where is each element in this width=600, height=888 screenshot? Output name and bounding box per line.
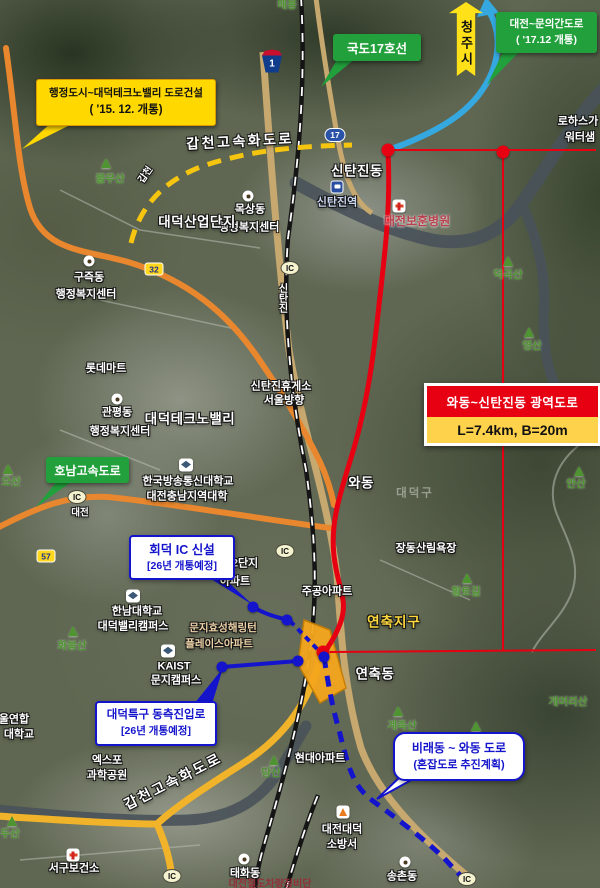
map-label: 대전 xyxy=(71,508,88,518)
map-label: 불무산 xyxy=(96,174,125,185)
map-label: 신탄진휴게소 xyxy=(251,382,312,393)
map-label: 태화동 xyxy=(230,869,260,880)
tri-marker-icon xyxy=(524,327,534,337)
route-shield-57: 57 xyxy=(37,550,56,563)
callout-route17-label: 국도17호선 xyxy=(333,38,421,57)
project-info-box: 와동~신탄진동 광역도로 L=7.4km, B=20m xyxy=(424,383,600,446)
tri-marker-icon xyxy=(7,816,17,826)
map-label: 신탄진역 xyxy=(317,198,357,209)
map-label: 황토길 xyxy=(452,587,481,598)
birae-line1: 비래동 ~ 와동 도로 xyxy=(397,739,521,757)
project-title: 와동~신탄진동 광역도로 xyxy=(427,386,598,417)
dot-blue-marker-icon xyxy=(217,662,228,673)
tri-marker-icon xyxy=(3,464,13,474)
map-label: 워터샘 xyxy=(565,133,595,144)
map-label: 두산 xyxy=(0,829,19,840)
dot-red-marker-icon xyxy=(497,146,510,159)
map-label: 행정복지센터 xyxy=(56,290,117,301)
map-label: 한남대학교 xyxy=(112,607,163,618)
map-label: 관평동 xyxy=(102,408,132,419)
callout-muneui-line1: 대전~문의간도로 xyxy=(496,17,597,33)
map-label: 롯데마트 xyxy=(86,364,126,375)
box-hoedeok-ic: 회덕 IC 신설 [26년 개통예정] xyxy=(129,535,235,580)
ic-marker-icon: IC xyxy=(281,261,300,275)
project-spec: L=7.4km, B=20m xyxy=(427,417,598,443)
map-label: 와동 xyxy=(348,476,374,490)
map-label: 대학교 xyxy=(4,730,34,741)
map-label: 대전보훈병원 xyxy=(384,215,450,227)
teukgu-line1: 대덕특구 동측진입로 xyxy=(99,707,213,724)
map-label: 구즉동 xyxy=(74,273,104,284)
tri-marker-icon xyxy=(101,158,111,168)
callout-honam-expressway: 호남고속도로 xyxy=(46,457,129,483)
map-label: 갑천고속화도로 xyxy=(122,750,224,811)
map-label: 로하스가 xyxy=(558,117,598,128)
callout-haengjeong-line2: ( '15. 12. 개통) xyxy=(37,102,215,119)
map-label: 연축동 xyxy=(356,667,395,681)
map-label: 울연합 xyxy=(0,715,29,726)
tri-marker-icon xyxy=(574,466,584,476)
callout-haengjeong-road: 행정도시~대덕테크노밸리 도로건설 ( '15. 12. 개통) xyxy=(36,79,216,126)
fire-marker-icon xyxy=(337,806,350,819)
map-label: 대전충남지역대학 xyxy=(147,492,228,503)
route-shield-1: 1 xyxy=(262,50,282,73)
map-label: 플레이스아파트 xyxy=(185,639,253,650)
tri-marker-icon xyxy=(393,706,403,716)
map-label: 송촌동 xyxy=(387,872,417,883)
map-label: 현대아파트 xyxy=(295,754,346,765)
callout-muneui-road: 대전~문의간도로 ( '17.12 개통) xyxy=(496,12,597,53)
route-shield-17: 17 xyxy=(325,128,346,142)
callout-honam-label: 호남고속도로 xyxy=(46,462,129,479)
train-marker-icon xyxy=(331,181,344,194)
map-label: 대덕밸리캠퍼스 xyxy=(98,622,169,633)
callout-muneui-line2: ( '17.12 개통) xyxy=(496,33,597,49)
map-label: 개머리산 xyxy=(549,697,588,708)
map-label: 갑천고속화도로 xyxy=(186,131,294,151)
school-marker-icon xyxy=(161,645,175,658)
map-label: 목상동 xyxy=(235,205,265,216)
map-label: 대덕구 xyxy=(396,488,434,500)
callout-route17: 국도17호선 xyxy=(333,34,421,61)
map-label: 대전철도차량정비단 xyxy=(229,880,312,888)
map-label: 안산 xyxy=(566,479,585,490)
map-label: 대덕테크노밸리 xyxy=(145,412,235,426)
box-biraedong-road: 비래동 ~ 와동 도로 (혼잡도로 추진계획) xyxy=(393,732,525,781)
map-label: 서구보건소 xyxy=(49,864,100,875)
tri-marker-icon xyxy=(68,626,78,636)
map-label: 매봉 xyxy=(277,0,296,10)
map-canvas: 갑천고속화도로신탄진동신탄진역대전보훈병원목상동행정복지센터대덕산업단지구즉동행… xyxy=(0,0,600,888)
map-label: 주공아파트 xyxy=(302,587,353,598)
map-label: 엑스포 xyxy=(92,756,122,767)
map-label: KAIST xyxy=(158,662,191,673)
tri-marker-icon xyxy=(503,256,513,266)
birae-line2: (혼잡도로 추진계획) xyxy=(397,757,521,774)
ic-marker-icon: IC xyxy=(458,872,477,886)
route-shield-32: 32 xyxy=(145,263,164,276)
hoedeok-line1: 회덕 IC 신설 xyxy=(133,541,231,559)
map-label: 연축지구 xyxy=(367,615,421,629)
dot-blue-marker-icon xyxy=(319,652,330,663)
tri-marker-icon xyxy=(462,573,472,583)
map-label: 행정복지센터 xyxy=(90,427,151,438)
map-label: 영산 xyxy=(522,341,541,352)
map-label: 문지효성해링턴 xyxy=(189,623,257,634)
ic-marker-icon: IC xyxy=(163,869,182,883)
circle-marker-icon xyxy=(243,191,254,202)
hoedeok-line2: [26년 개통예정] xyxy=(133,559,231,574)
cross-marker-icon xyxy=(393,200,406,213)
circle-marker-icon xyxy=(112,394,123,405)
map-label: 대덕산업단지 xyxy=(158,215,236,229)
map-label: 과학공원 xyxy=(87,771,127,782)
teukgu-line2: [26년 개통예정] xyxy=(99,724,213,740)
ic-marker-icon: IC xyxy=(276,544,295,558)
map-label: 장동산림욕장 xyxy=(396,544,457,555)
map-label: 2단지 xyxy=(232,559,258,570)
tri-marker-icon xyxy=(471,721,481,731)
cross-marker-icon xyxy=(67,849,80,862)
map-label: 문지캠퍼스 xyxy=(151,676,202,687)
map-label: 신탄진 xyxy=(276,283,286,313)
circle-marker-icon xyxy=(239,854,250,865)
map-label: 갑천 xyxy=(137,165,155,185)
school-marker-icon xyxy=(179,459,193,472)
map-label: 대전대덕 xyxy=(322,825,362,836)
map-label: 한국방송통신대학교 xyxy=(142,477,233,488)
circle-marker-icon xyxy=(400,857,411,868)
map-label: 덕곡산 xyxy=(494,270,523,281)
map-label: 당산 xyxy=(261,768,280,779)
dot-blue-marker-icon xyxy=(248,602,259,613)
map-label: 계족산 xyxy=(388,721,417,732)
circle-marker-icon xyxy=(84,256,95,267)
map-label: 서울방향 xyxy=(264,396,304,407)
dot-blue-marker-icon xyxy=(293,656,304,667)
tri-marker-icon xyxy=(269,755,279,765)
box-daedeok-teukgu: 대덕특구 동측진입로 [26년 개통예정] xyxy=(95,701,217,746)
callout-haengjeong-line1: 행정도시~대덕테크노밸리 도로건설 xyxy=(37,86,215,102)
dot-blue-marker-icon xyxy=(282,615,293,626)
ic-marker-icon: IC xyxy=(68,490,87,504)
map-label: 오산 xyxy=(1,477,20,488)
dot-red-marker-icon xyxy=(382,144,395,157)
map-label: 소방서 xyxy=(327,840,357,851)
cheongju-banner-label: 청주시 xyxy=(457,20,476,68)
map-label: 신탄진동 xyxy=(331,164,383,178)
school-marker-icon xyxy=(126,590,140,603)
map-label: 화봉산 xyxy=(58,641,87,652)
